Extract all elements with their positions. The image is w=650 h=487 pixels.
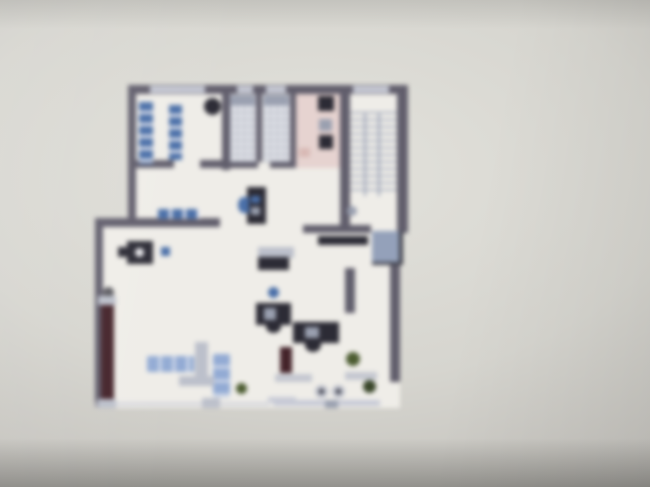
terrace-edge-left	[268, 397, 296, 402]
bathroom-1-floor	[230, 95, 256, 162]
window-top-2	[237, 86, 253, 93]
desk-2-chair	[305, 338, 321, 352]
window-top-3	[266, 86, 286, 93]
wood-stove-plate	[135, 248, 144, 257]
terrace-rail-2	[345, 372, 377, 380]
side-table-blue	[161, 247, 170, 256]
bathroom-2-floor	[263, 95, 290, 162]
wall-bedroom-bottom-b	[200, 160, 222, 168]
sofa-horizontal	[147, 356, 194, 372]
center-desk-monitor	[251, 196, 260, 203]
kitchen-appliance-1	[318, 96, 334, 111]
staircase-stringer-1	[364, 112, 366, 196]
bathroom-2-fixture	[264, 95, 289, 105]
plant-terrace	[363, 380, 376, 393]
wall-step-left	[95, 218, 220, 227]
coffee-table-horizontal	[179, 376, 214, 386]
kitchen-sink	[299, 148, 310, 157]
shelf-unit	[169, 105, 182, 160]
stool-blue	[268, 287, 279, 298]
window-top-4	[353, 86, 389, 93]
wall-right-upper	[397, 85, 408, 233]
round-table	[204, 98, 221, 115]
sideboard-tall	[101, 303, 114, 401]
radiator	[158, 209, 200, 219]
sideboard-cap-top	[98, 296, 116, 305]
plant-dining	[346, 352, 360, 366]
desk-1-inset	[264, 308, 276, 320]
sideboard-cap-bottom	[98, 399, 116, 408]
wall-mid-right	[303, 225, 371, 233]
kitchen-appliance-3	[319, 135, 333, 149]
terrace-stool-b-dot	[336, 389, 341, 394]
staircase-treads	[350, 112, 397, 196]
terrace-stool-a-dot	[319, 389, 324, 394]
screen-photo	[0, 0, 650, 487]
kitchen-appliance-2	[319, 119, 332, 131]
cabinet-maroon-small	[280, 347, 292, 373]
wall-center-vertical	[345, 268, 355, 313]
hall-sideboard	[318, 236, 368, 245]
plant-living	[236, 383, 247, 394]
cabinet-front	[258, 257, 289, 270]
entrance-doormat	[372, 231, 403, 265]
center-desk	[247, 187, 266, 224]
wall-right-lower	[390, 262, 400, 382]
hall-knob	[347, 206, 357, 216]
wall-bedroom-right	[222, 85, 230, 170]
terrace-rail-1	[275, 374, 312, 382]
ottoman	[202, 398, 220, 408]
window-top-1	[150, 86, 205, 93]
terrace-edge-block	[325, 400, 338, 408]
floor-plan	[0, 0, 650, 487]
desk-1-chair	[266, 320, 281, 333]
staircase-stringer-2	[378, 112, 380, 196]
sofa-vertical	[213, 354, 230, 397]
stove-pipe	[118, 247, 127, 257]
wall-left-upper	[128, 85, 136, 225]
center-desk-chair	[238, 197, 249, 213]
wardrobe	[139, 102, 153, 164]
bathroom-1-fixture	[231, 95, 255, 105]
living-bottom-edge	[95, 402, 270, 406]
wall-bath-divider	[256, 94, 262, 162]
center-desk-tray	[251, 207, 260, 215]
